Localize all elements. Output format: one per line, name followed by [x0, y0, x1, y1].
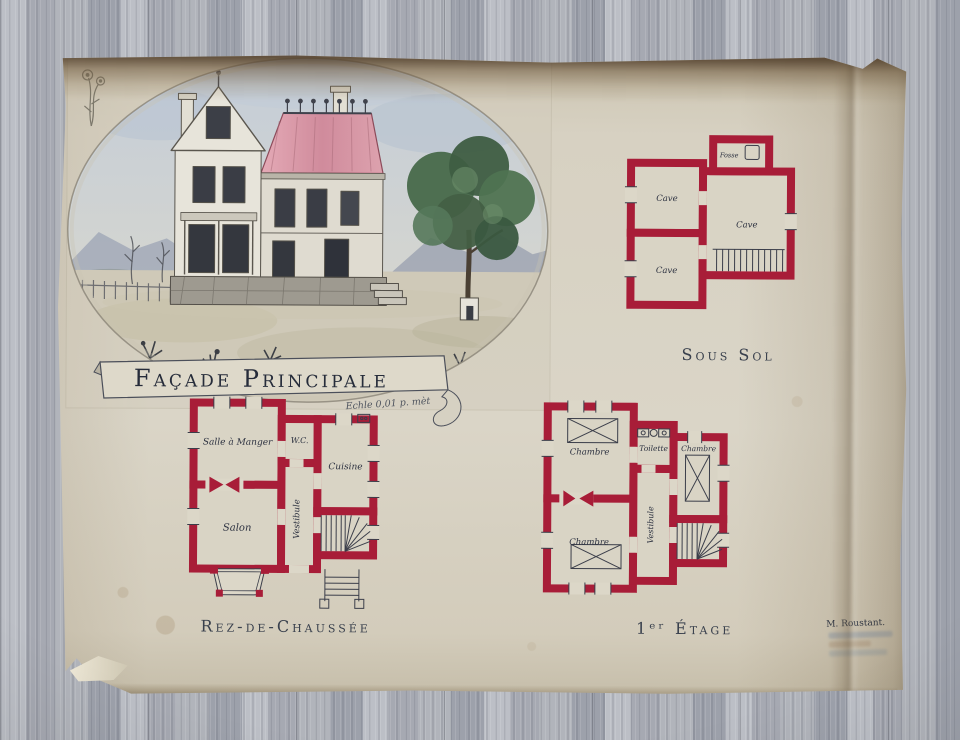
- caption-premier-etage: 1ᵉʳ Étage: [595, 619, 775, 639]
- room-label-cuisine: Cuisine: [328, 462, 362, 472]
- porch-roof: [181, 212, 257, 220]
- caption-rez-de-chaussee: Rez-de-Chaussée: [171, 616, 401, 636]
- room-label-chambre: Chambre: [570, 447, 610, 457]
- room-label-cave: Cave: [736, 220, 757, 230]
- bay-window: [210, 566, 269, 597]
- plan-sous-sol: Cave Cave Cave Fosse: [616, 133, 805, 339]
- room-label-toilette: Toilette: [639, 444, 668, 453]
- room-label-cave: Cave: [656, 266, 677, 276]
- ribbon-curl: [433, 390, 461, 426]
- sous-sol-walls: [630, 139, 791, 306]
- room-label-chambre: Chambre: [681, 444, 717, 453]
- room-label-vestibule: Vestibule: [646, 506, 655, 544]
- photo-of-architectural-drawing: Façade Principale Echle 0,01 p. mèt: [0, 0, 960, 740]
- room-label-salon: Salon: [223, 523, 252, 534]
- drawing-sheet: Façade Principale Echle 0,01 p. mèt: [54, 48, 909, 700]
- room-label-wc: W.C.: [291, 436, 309, 445]
- room-label-cave: Cave: [656, 194, 677, 204]
- outbuilding: [460, 298, 478, 320]
- room-label-fosse: Fosse: [719, 151, 739, 159]
- plan-rez-de-chaussee: Salle à Manger W.C. Cuisine Vestibule Sa…: [177, 388, 378, 611]
- room-label-chambre: Chambre: [569, 537, 609, 547]
- paper-crease: [830, 52, 863, 700]
- exterior-steps: [320, 569, 364, 608]
- room-label-vestibule: Vestibule: [292, 499, 302, 539]
- caption-sous-sol: Sous Sol: [648, 345, 808, 365]
- plan-premier-etage: Chambre Toilette Chambre Vestibule Chamb…: [533, 392, 730, 605]
- room-label-salle-a-manger: Salle à Manger: [203, 437, 273, 448]
